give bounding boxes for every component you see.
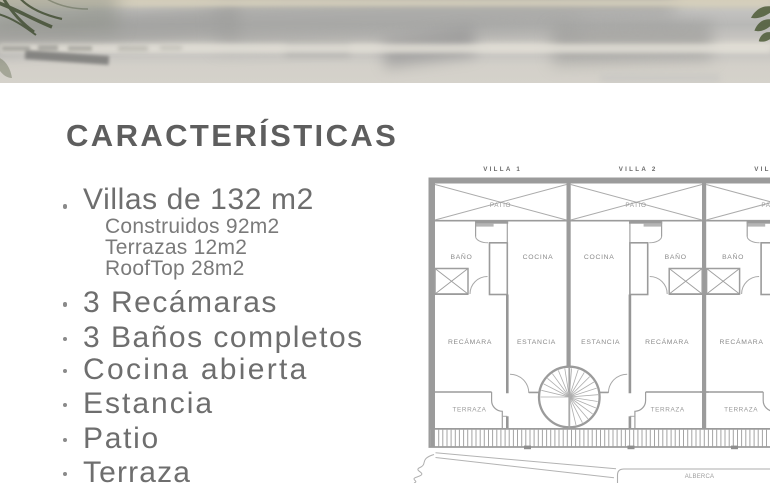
svg-text:TERRAZA: TERRAZA	[452, 407, 486, 414]
svg-text:COCINA: COCINA	[584, 254, 615, 261]
svg-text:ESTANCIA: ESTANCIA	[517, 339, 556, 346]
svg-text:BAÑO: BAÑO	[450, 252, 472, 261]
svg-text:PATIO: PATIO	[625, 202, 646, 209]
svg-text:BAÑO: BAÑO	[665, 252, 687, 261]
svg-text:ALBERCA: ALBERCA	[685, 474, 714, 480]
svg-text:BAÑO: BAÑO	[722, 252, 744, 261]
svg-text:PATIO: PATIO	[490, 202, 511, 209]
svg-text:TERRAZA: TERRAZA	[651, 407, 685, 414]
svg-text:PA: PA	[761, 202, 770, 209]
svg-text:VILLA 1: VILLA 1	[483, 166, 522, 173]
svg-text:COCINA: COCINA	[523, 254, 554, 261]
svg-text:VILLA 3: VILLA 3	[754, 166, 770, 173]
svg-text:VILLA 2: VILLA 2	[619, 166, 658, 173]
svg-text:RECÁMARA: RECÁMARA	[720, 337, 764, 346]
svg-text:RECÁMARA: RECÁMARA	[448, 337, 492, 346]
svg-text:ESTANCIA: ESTANCIA	[581, 339, 620, 346]
svg-text:RECÁMARA: RECÁMARA	[645, 337, 689, 346]
svg-text:TERRAZA: TERRAZA	[724, 407, 758, 414]
